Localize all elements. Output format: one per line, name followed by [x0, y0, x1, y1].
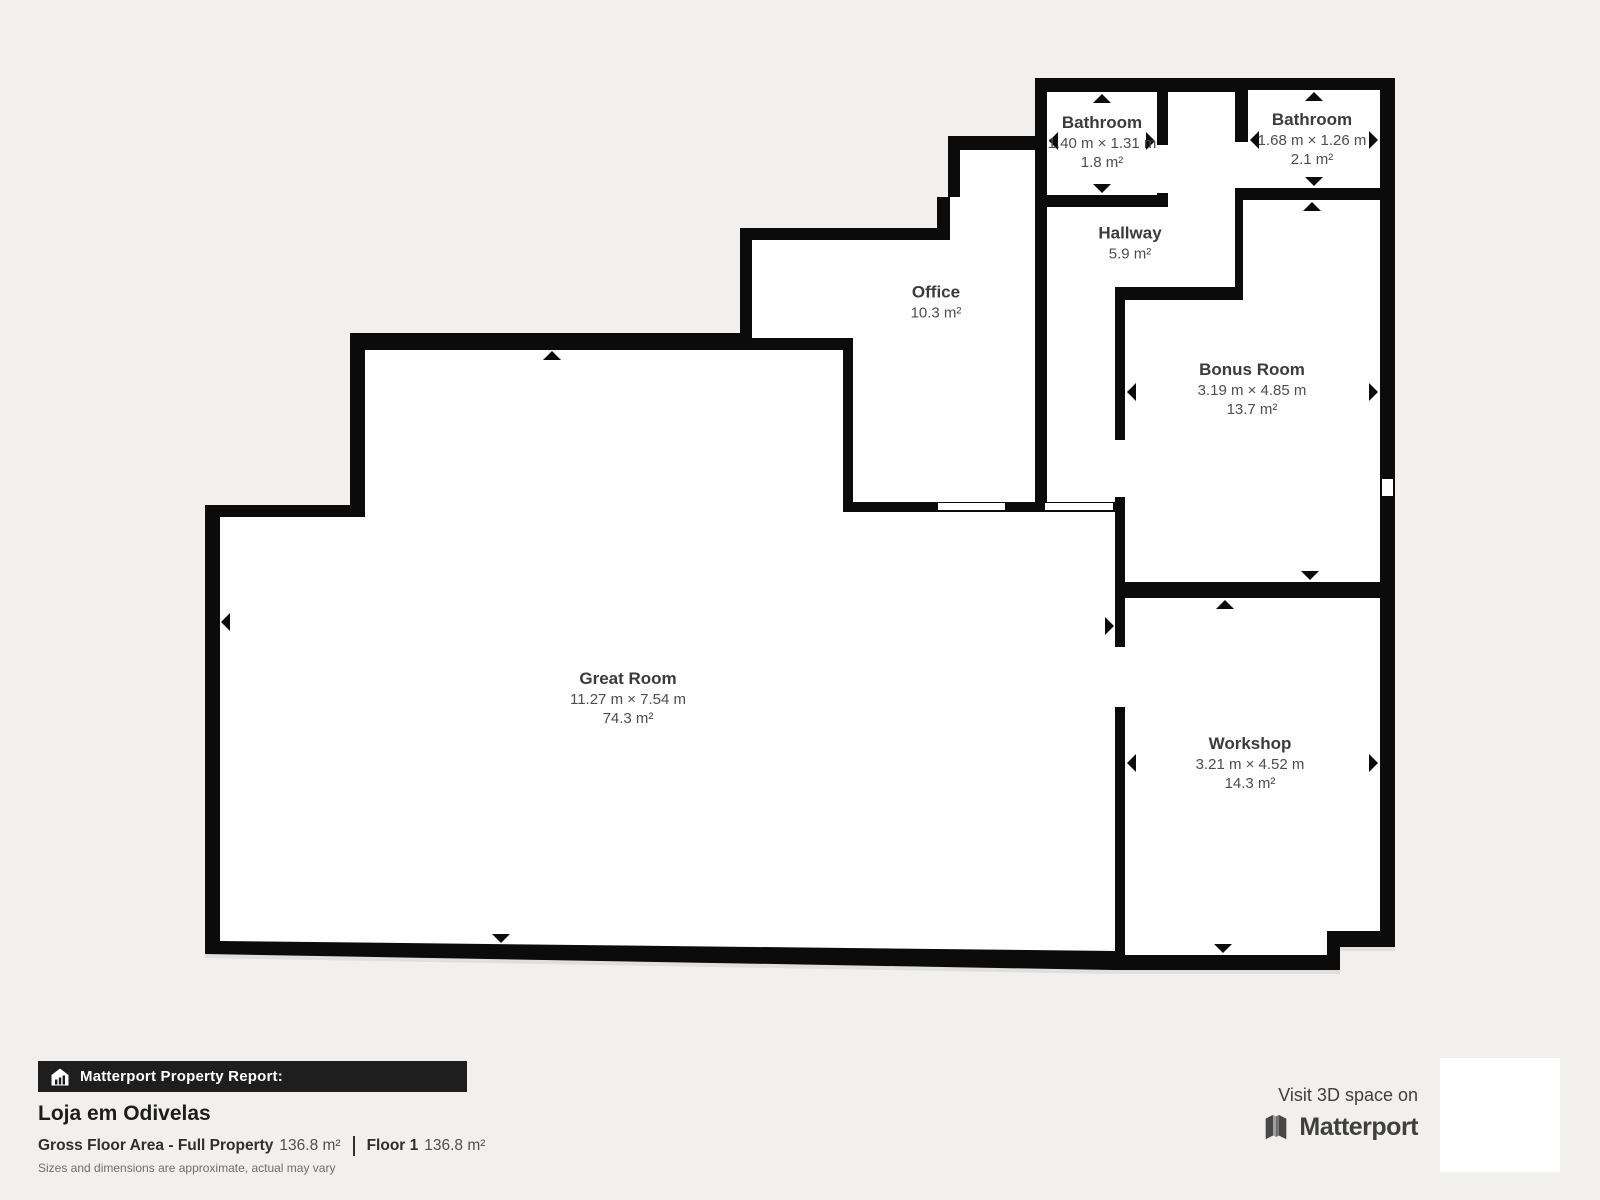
floor-area-summary: Gross Floor Area - Full Property 136.8 m… [38, 1136, 485, 1156]
room-label-office: Office 10.3 m² [911, 282, 962, 323]
room-label-bathroom-1: Bathroom 1.40 m × 1.31 m 1.8 m² [1048, 112, 1157, 172]
window-office [938, 503, 1005, 510]
house-chart-icon [50, 1067, 70, 1087]
room-area: 10.3 m² [911, 304, 962, 323]
room-area: 2.1 m² [1258, 150, 1367, 169]
room-label-hallway: Hallway 5.9 m² [1098, 223, 1161, 264]
report-bar: Matterport Property Report: [38, 1061, 467, 1092]
room-area: 1.8 m² [1048, 153, 1157, 172]
room-dimensions: 11.27 m × 7.54 m [570, 690, 686, 709]
floorplan-drawing [0, 0, 1600, 1200]
room-area: 13.7 m² [1198, 400, 1307, 419]
room-area: 14.3 m² [1196, 774, 1305, 793]
room-label-workshop: Workshop 3.21 m × 4.52 m 14.3 m² [1196, 733, 1305, 793]
matterport-wordmark: Matterport [1299, 1113, 1418, 1142]
floorplan-page: { "floorplan": { "rooms": [ { "id": "bat… [0, 0, 1600, 1200]
property-name: Loja em Odivelas [38, 1102, 211, 1126]
matterport-brand-row: Matterport [1261, 1112, 1418, 1142]
gross-floor-area-label: Gross Floor Area - Full Property [38, 1137, 273, 1155]
visit-3d-space-text: Visit 3D space on [1261, 1084, 1418, 1106]
matterport-promo: Visit 3D space on Matterport [1261, 1084, 1418, 1142]
room-name: Office [911, 282, 962, 304]
door-opening-workshop [1115, 647, 1125, 707]
room-dimensions: 3.19 m × 4.85 m [1198, 381, 1307, 400]
floor-value: 136.8 m² [424, 1137, 485, 1155]
room-name: Hallway [1098, 223, 1161, 245]
room-name: Workshop [1196, 733, 1305, 755]
window-bonus-room [1382, 479, 1393, 496]
floor-label: Floor 1 [367, 1137, 419, 1155]
room-name: Bathroom [1258, 109, 1367, 131]
qr-code [1440, 1058, 1560, 1172]
room-label-bathroom-2: Bathroom 1.68 m × 1.26 m 2.1 m² [1258, 109, 1367, 169]
disclaimer-text: Sizes and dimensions are approximate, ac… [38, 1161, 335, 1175]
separator [353, 1136, 355, 1156]
room-name: Bathroom [1048, 112, 1157, 134]
room-area: 74.3 m² [570, 709, 686, 728]
room-label-great-room: Great Room 11.27 m × 7.54 m 74.3 m² [570, 668, 686, 728]
report-bar-label: Matterport Property Report: [80, 1068, 283, 1085]
room-dimensions: 3.21 m × 4.52 m [1196, 755, 1305, 774]
room-dimensions: 1.68 m × 1.26 m [1258, 131, 1367, 150]
room-name: Great Room [570, 668, 686, 690]
room-label-bonus-room: Bonus Room 3.19 m × 4.85 m 13.7 m² [1198, 359, 1307, 419]
window-hallway [1045, 503, 1113, 510]
door-opening-bathroom-2 [1235, 142, 1248, 188]
gross-floor-area-value: 136.8 m² [279, 1137, 340, 1155]
room-name: Bonus Room [1198, 359, 1307, 381]
room-dimensions: 1.40 m × 1.31 m [1048, 134, 1157, 153]
door-opening-bonus-room [1115, 440, 1125, 497]
door-opening-bathroom-1 [1157, 145, 1168, 193]
room-area: 5.9 m² [1098, 245, 1161, 264]
matterport-logo-icon [1261, 1112, 1291, 1142]
